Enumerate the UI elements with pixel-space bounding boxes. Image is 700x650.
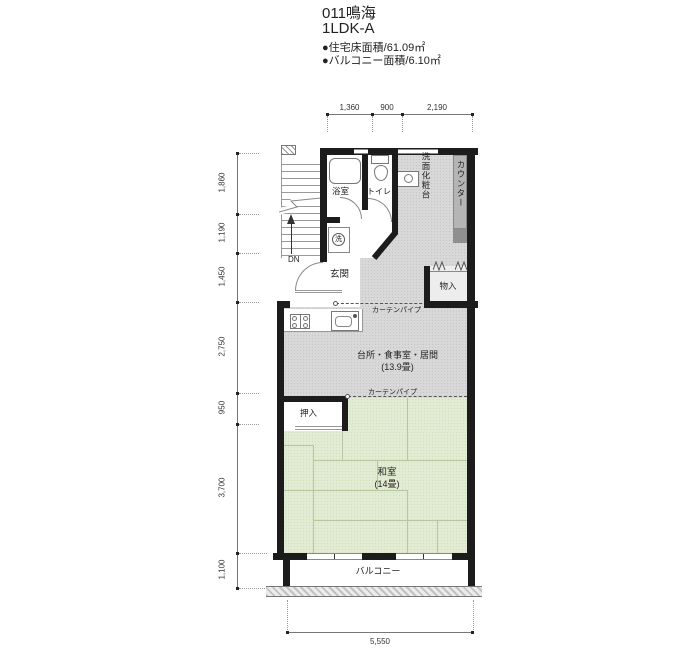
wall-balcony-right [468, 560, 475, 586]
stair-arrow-line [291, 224, 292, 254]
dim-tick [236, 152, 239, 155]
dim-tick [236, 552, 239, 555]
wall-toilet-right [392, 148, 398, 234]
top-dim-line [327, 114, 472, 115]
wall-closet-right [342, 396, 348, 431]
curtain-pipe-end-upper [333, 301, 338, 306]
counter-label: カウンター [455, 160, 467, 208]
dim-extension [239, 553, 267, 554]
balcony-area-note: ●バルコニー面積/6.10㎡ [322, 52, 441, 68]
dim-extension [239, 302, 259, 303]
tatami-floor-main [284, 431, 467, 553]
dim-tick [236, 392, 239, 395]
dim-tick [471, 631, 474, 634]
bath-label: 浴室 [332, 185, 349, 197]
dim-tick [286, 631, 289, 634]
dim-tick [236, 423, 239, 426]
tatami-line [284, 445, 313, 446]
storage-label: 物入 [428, 280, 468, 292]
wall-bath-toilet [362, 148, 368, 210]
bathtub [329, 158, 361, 184]
bottom-dim-line [287, 632, 473, 633]
dim-tick [401, 113, 404, 116]
toilet-bowl [374, 165, 388, 181]
window-top-small [354, 149, 368, 154]
dim-extension [239, 393, 259, 394]
dim-tick [236, 587, 239, 590]
faucet-icon [353, 314, 357, 318]
dim-left-2: 1,190 [218, 213, 227, 253]
tatami-line [313, 460, 467, 461]
dim-extension [473, 600, 474, 630]
dim-tick [236, 252, 239, 255]
dim-extension [327, 116, 328, 132]
hanger-pipe-mark [433, 261, 446, 271]
balcony-label: バルコニー [330, 564, 426, 577]
tatami-line [407, 398, 408, 460]
dim-left-5: 950 [218, 388, 227, 428]
dim-top-3: 2,190 [402, 103, 472, 112]
dim-extension [239, 253, 259, 254]
tatami-line [313, 445, 314, 553]
washing-machine-symbol: 洗 [332, 233, 345, 246]
vanity-label: 洗面化粧台 [420, 152, 432, 200]
dim-extension [287, 600, 288, 630]
tatami-room-label: 和室 [357, 464, 417, 478]
dim-top-2: 900 [372, 103, 402, 112]
wall-ldk-topright [424, 301, 478, 308]
wall-left-lower [277, 301, 284, 560]
stove-burner [303, 316, 308, 321]
dim-extension [472, 116, 473, 132]
curtain-pipe-end-lower [345, 394, 350, 399]
dim-left-1: 1,860 [218, 163, 227, 203]
stair-arrow-head [287, 214, 295, 224]
wall-bath-bottom [325, 217, 340, 223]
stair-down-label: DN [288, 255, 300, 264]
dim-tick [326, 113, 329, 116]
dim-extension [239, 214, 259, 215]
dim-top-1: 1,360 [327, 103, 372, 112]
closet-sliding-edge [295, 426, 347, 430]
window-mullion [334, 554, 335, 559]
tatami-line [342, 431, 343, 460]
toilet-tank [371, 155, 389, 164]
wall-left-upper [320, 155, 327, 262]
stove-burner [292, 323, 297, 328]
dim-left-4: 2,750 [218, 327, 227, 367]
window-top-wide [398, 149, 438, 154]
bath-door-arc [340, 197, 362, 219]
tatami-line [437, 520, 438, 553]
storage-front-line [430, 271, 467, 272]
wall-right [467, 148, 475, 560]
wall-balcony-left [283, 560, 290, 586]
stair-break-line [279, 196, 321, 218]
tatami-line [407, 490, 408, 553]
counter-end-cap [453, 229, 467, 243]
curtain-pipe-label-lower: カーテンパイプ [368, 387, 417, 397]
dim-left-7: 1,100 [218, 550, 227, 590]
dim-bottom: 5,550 [287, 637, 473, 646]
dim-extension [372, 116, 373, 132]
wall-closet-top [284, 396, 348, 402]
window-bottom-right [396, 553, 452, 560]
dim-extension [239, 153, 259, 154]
stove-divider [300, 314, 301, 329]
dim-extension [239, 424, 259, 425]
balcony-rail [266, 586, 482, 597]
toilet-label: トイレ [367, 186, 391, 197]
curtain-pipe-line-upper [336, 303, 427, 304]
wall-bottom-1 [273, 553, 307, 560]
dim-tick [236, 213, 239, 216]
stove-burner [292, 316, 297, 321]
curtain-pipe-label-upper: カーテンパイプ [372, 305, 421, 315]
dim-left-6: 3,700 [218, 468, 227, 508]
plan-type: 1LDK-A [322, 20, 375, 37]
dim-left-3: 1,450 [218, 257, 227, 297]
hanger-pipe-mark [455, 261, 468, 271]
toilet-door-arc [368, 198, 392, 222]
ldk-size-label: (13.9畳) [340, 360, 455, 373]
dim-extension [239, 588, 267, 589]
dim-tick [471, 113, 474, 116]
left-dim-line [237, 153, 238, 588]
window-mullion [423, 554, 424, 559]
wall-bottom-3 [452, 553, 475, 560]
stove-burner [303, 323, 308, 328]
dim-tick [236, 301, 239, 304]
washbasin-bowl [404, 174, 413, 183]
meter-box [281, 145, 296, 155]
tatami-size-label: (14畳) [357, 477, 417, 490]
dim-extension [402, 116, 403, 132]
dim-tick [371, 113, 374, 116]
entrance-label: 玄関 [330, 266, 349, 280]
wall-bottom-2 [362, 553, 396, 560]
sink-basin [335, 316, 352, 327]
tatami-line [284, 490, 407, 491]
closet-label: 押入 [300, 407, 317, 419]
tatami-line [313, 520, 467, 521]
entrance-door-arc [295, 262, 323, 291]
